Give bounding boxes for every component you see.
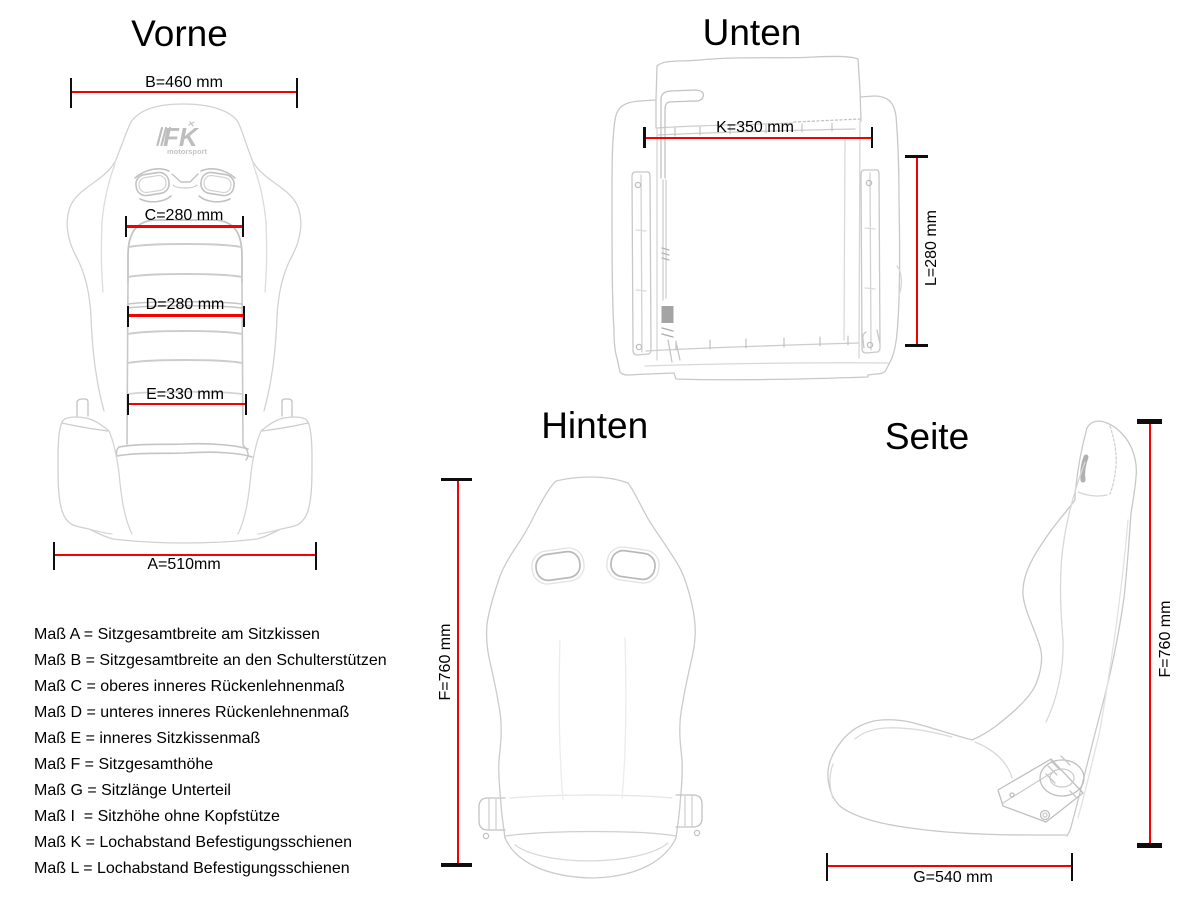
svg-text:motorsport: motorsport bbox=[167, 147, 208, 156]
